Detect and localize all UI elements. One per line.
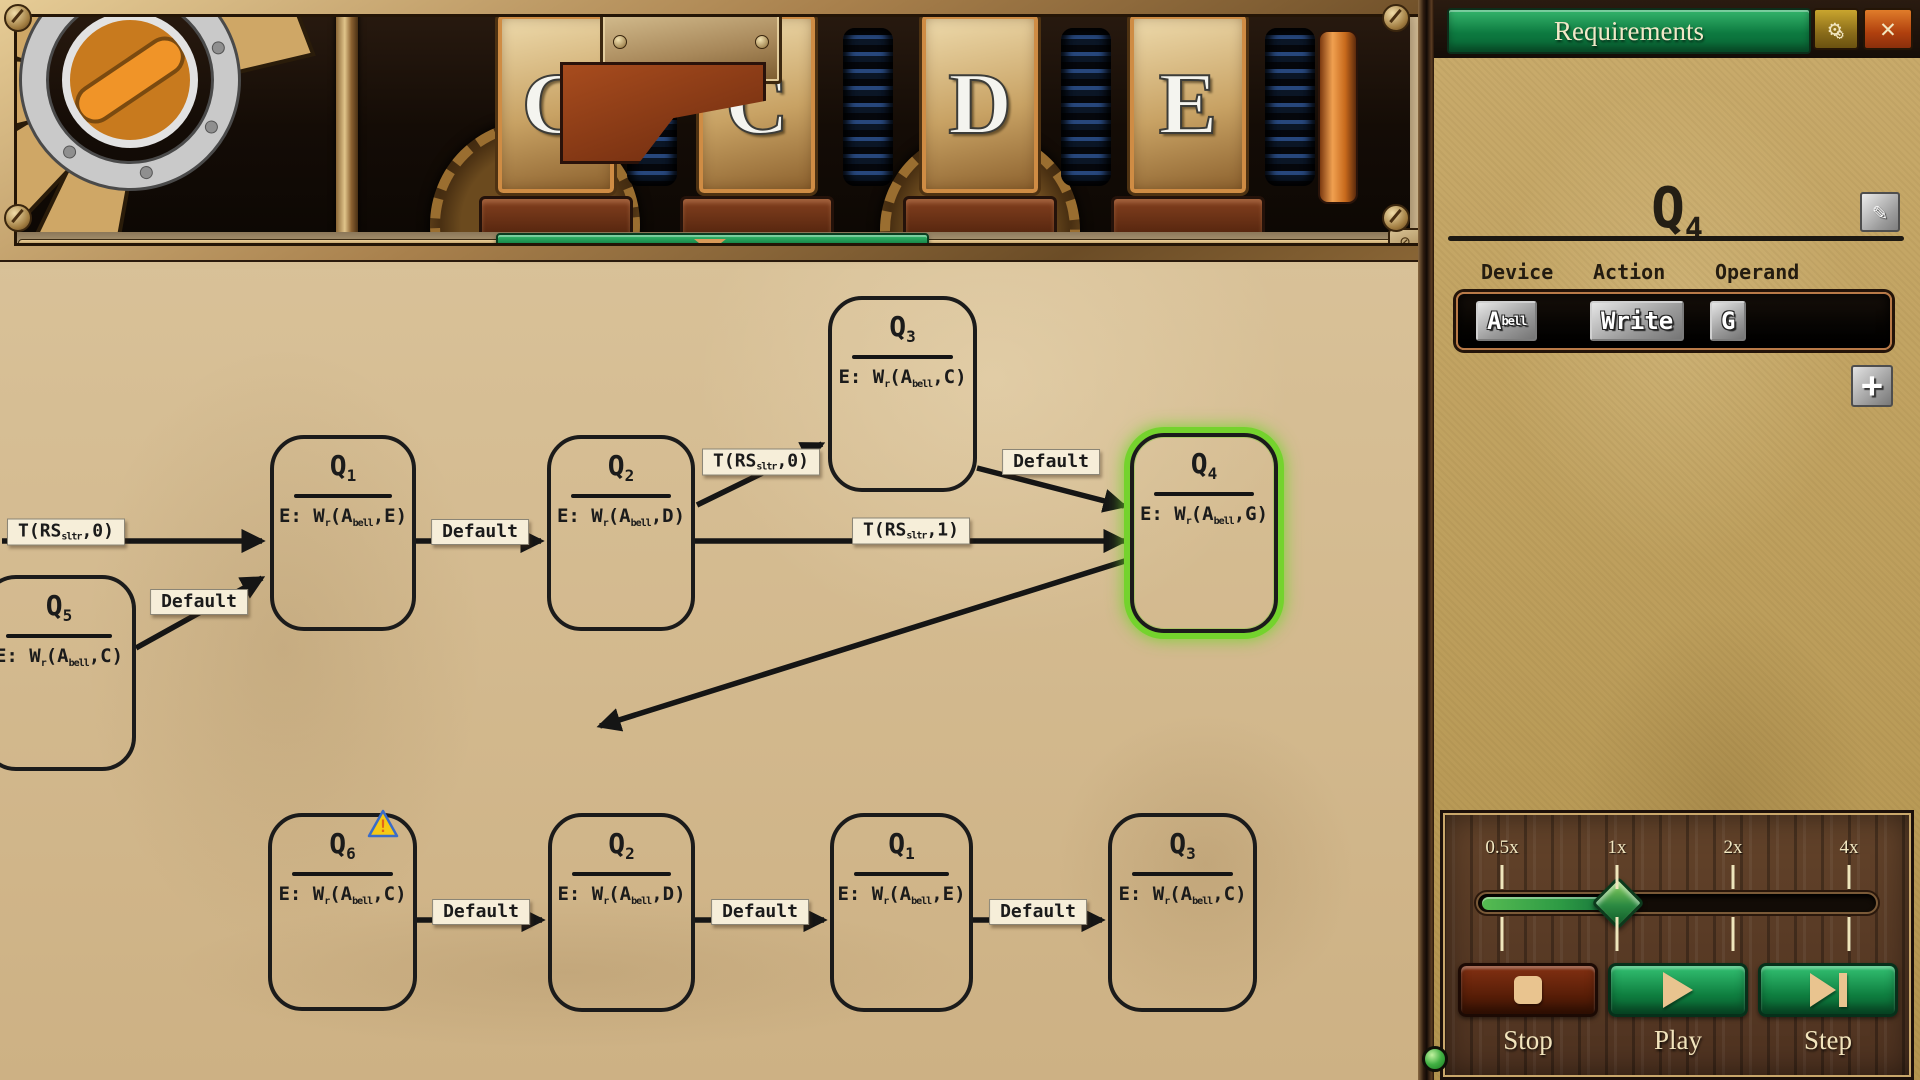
column-header-operand: Operand — [1715, 260, 1799, 284]
state-node-action: E: Wr(Abell,C) — [272, 883, 413, 907]
transition-label[interactable]: Default — [431, 519, 529, 545]
note-hammer: D — [913, 12, 1047, 232]
requirements-panel: Requirements ⚙ ⚙ ✕ Q4 ✎ DeviceActionOper… — [1434, 0, 1920, 1080]
hammer-base — [903, 196, 1057, 232]
state-node-q3b[interactable]: Q3E: Wr(Abell,C) — [1108, 813, 1257, 1012]
step-icon — [1810, 973, 1847, 1007]
hammer-base — [1111, 196, 1265, 232]
coil-spring — [843, 28, 893, 186]
state-node-title: Q3 — [1112, 829, 1253, 869]
state-node-q5[interactable]: Q5E: Wr(Abell,C) — [0, 575, 136, 771]
state-machine-canvas[interactable]: GCDE Q1E: Wr(Abell,E)Q2E: Wr(Abell,D)Q3E… — [0, 0, 1418, 1080]
speed-mark-4x: 4x — [1840, 837, 1859, 859]
speed-tick — [1848, 865, 1851, 889]
step-label: Step — [1758, 1025, 1898, 1056]
column-header-action: Action — [1593, 260, 1665, 284]
panel-divider — [1418, 0, 1434, 1080]
speed-mark-1x: 1x — [1608, 837, 1627, 859]
state-node-rule — [294, 494, 392, 498]
state-node-q1b[interactable]: Q1E: Wr(Abell,E) — [830, 813, 973, 1012]
speed-tick — [1501, 865, 1504, 889]
state-node-action: E: Wr(Abell,C) — [0, 645, 132, 669]
state-node-rule — [571, 494, 671, 498]
column-header-device: Device — [1481, 260, 1553, 284]
state-node-rule — [6, 634, 112, 638]
hammer-base — [479, 196, 633, 232]
transition-label[interactable]: Default — [711, 899, 809, 925]
state-node-rule — [852, 355, 953, 359]
note-plaque: D — [919, 12, 1041, 196]
rule-row[interactable]: AbellWriteG — [1456, 292, 1892, 350]
speed-mark-2x: 2x — [1724, 837, 1743, 859]
plus-icon: + — [1861, 371, 1883, 401]
speed-tick — [1616, 865, 1619, 889]
state-subscript: 4 — [1685, 212, 1703, 247]
warning-icon: ! — [367, 809, 399, 843]
screw-icon — [4, 204, 32, 232]
note-hammer: E — [1121, 12, 1255, 232]
state-node-title: Q1 — [274, 451, 412, 491]
transition-label[interactable]: Default — [150, 589, 248, 615]
note-letter: D — [948, 54, 1012, 155]
speed-mark-0.5x: 0.5x — [1485, 837, 1518, 859]
speed-tick — [1616, 917, 1619, 951]
speed-tick — [1732, 865, 1735, 889]
state-node-title: Q2 — [551, 451, 691, 491]
note-letter: E — [1159, 54, 1218, 155]
rail-end-plate — [1388, 228, 1418, 262]
coil-spring — [1265, 28, 1315, 186]
speed-tick — [1501, 917, 1504, 951]
play-label: Play — [1608, 1025, 1748, 1056]
stop-icon — [1514, 976, 1542, 1004]
rule-chip-write[interactable]: Write — [1590, 301, 1684, 341]
pencil-icon: ✎ — [1873, 198, 1887, 226]
state-node-title: Q5 — [0, 591, 132, 631]
settings-button[interactable]: ⚙ ⚙ — [1813, 8, 1859, 50]
play-button[interactable] — [1608, 963, 1748, 1017]
stop-button[interactable] — [1458, 963, 1598, 1017]
state-letter: Q — [1651, 176, 1685, 241]
rule-chip-g[interactable]: G — [1710, 301, 1746, 341]
note-plaque: E — [1127, 12, 1249, 196]
title-rule — [1448, 236, 1904, 241]
transition-label[interactable]: T(RSsltr,1) — [852, 518, 970, 545]
note-wheel — [0, 0, 370, 232]
state-node-action: E: Wr(Abell,D) — [551, 505, 691, 529]
hammer-base — [680, 196, 834, 232]
screw-icon — [1382, 4, 1410, 32]
close-icon: ✕ — [1880, 14, 1896, 44]
state-node-action: E: Wr(Abell,C) — [1112, 883, 1253, 907]
state-node-rule — [1132, 872, 1233, 876]
state-node-action: E: Wr(Abell,E) — [834, 883, 969, 907]
state-node-action: E: Wr(Abell,C) — [832, 366, 973, 390]
close-button[interactable]: ✕ — [1863, 8, 1913, 50]
state-node-title: Q4 — [1134, 449, 1274, 489]
coil-spring — [1061, 28, 1111, 186]
play-icon — [1663, 972, 1693, 1008]
stop-label: Stop — [1458, 1025, 1598, 1056]
state-node-q2[interactable]: Q2E: Wr(Abell,D) — [547, 435, 695, 631]
transition-label[interactable]: Default — [989, 899, 1087, 925]
state-node-rule — [854, 872, 949, 876]
state-node-q2b[interactable]: Q2E: Wr(Abell,D) — [548, 813, 695, 1012]
speed-tick — [1732, 917, 1735, 951]
screw-icon — [4, 4, 32, 32]
speed-tick — [1848, 917, 1851, 951]
transition-label[interactable]: Default — [432, 899, 530, 925]
gear-icon: ⚙ — [1835, 27, 1843, 43]
screw-icon — [1382, 204, 1410, 232]
svg-text:!: ! — [378, 817, 388, 837]
state-node-q6[interactable]: Q6E: Wr(Abell,C)! — [268, 813, 417, 1011]
progress-marker-icon[interactable] — [694, 239, 726, 252]
transition-label[interactable]: Default — [1002, 449, 1100, 475]
state-node-action: E: Wr(Abell,D) — [552, 883, 691, 907]
transition-label[interactable]: T(RSsltr,0) — [702, 449, 820, 476]
state-node-action: E: Wr(Abell,E) — [274, 505, 412, 529]
panel-title-label: Requirements — [1554, 16, 1704, 47]
panel-title: Requirements — [1447, 8, 1811, 54]
music-machine-banner: GCDE — [0, 0, 1410, 232]
rule-chip-a[interactable]: Abell — [1476, 301, 1537, 341]
state-node-rule — [1154, 492, 1254, 496]
state-node-q4[interactable]: Q4E: Wr(Abell,G) — [1130, 433, 1278, 633]
state-node-q1[interactable]: Q1E: Wr(Abell,E) — [270, 435, 416, 631]
step-button[interactable] — [1758, 963, 1898, 1017]
state-node-rule — [572, 872, 671, 876]
state-node-title: Q2 — [552, 829, 691, 869]
app-root: GCDE Q1E: Wr(Abell,E)Q2E: Wr(Abell,D)Q3E… — [0, 0, 1920, 1080]
state-node-title: Q1 — [834, 829, 969, 869]
state-node-q3[interactable]: Q3E: Wr(Abell,C) — [828, 296, 977, 492]
state-node-action: E: Wr(Abell,G) — [1134, 503, 1274, 527]
frame-divider — [336, 0, 358, 232]
status-led — [1422, 1046, 1448, 1072]
simulation-controls: 0.5x1x2x4xStopPlayStep — [1440, 810, 1914, 1080]
rule-column-headers: DeviceActionOperand — [1434, 260, 1920, 286]
state-node-rule — [292, 872, 393, 876]
edit-state-button[interactable]: ✎ — [1860, 192, 1900, 232]
pipe-decoration — [1318, 30, 1358, 204]
state-node-title: Q3 — [832, 312, 973, 352]
add-rule-button[interactable]: + — [1851, 365, 1893, 407]
transition-label[interactable]: T(RSsltr,0) — [7, 519, 125, 546]
